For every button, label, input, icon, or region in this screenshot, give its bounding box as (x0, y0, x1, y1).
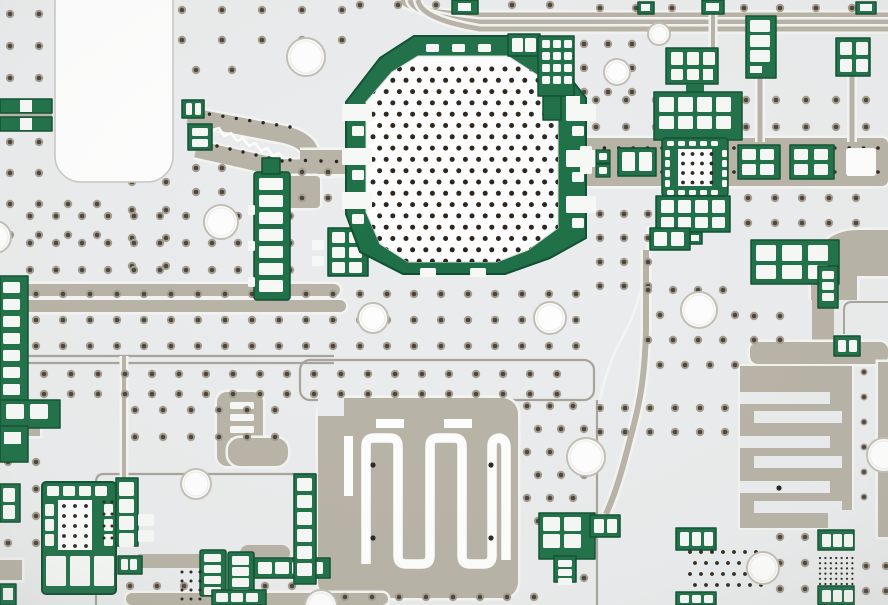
pcb-board-svg (0, 0, 888, 605)
photo-vignette (0, 0, 888, 605)
pcb-photo: Close-up photograph of a white microwave… (0, 0, 888, 605)
